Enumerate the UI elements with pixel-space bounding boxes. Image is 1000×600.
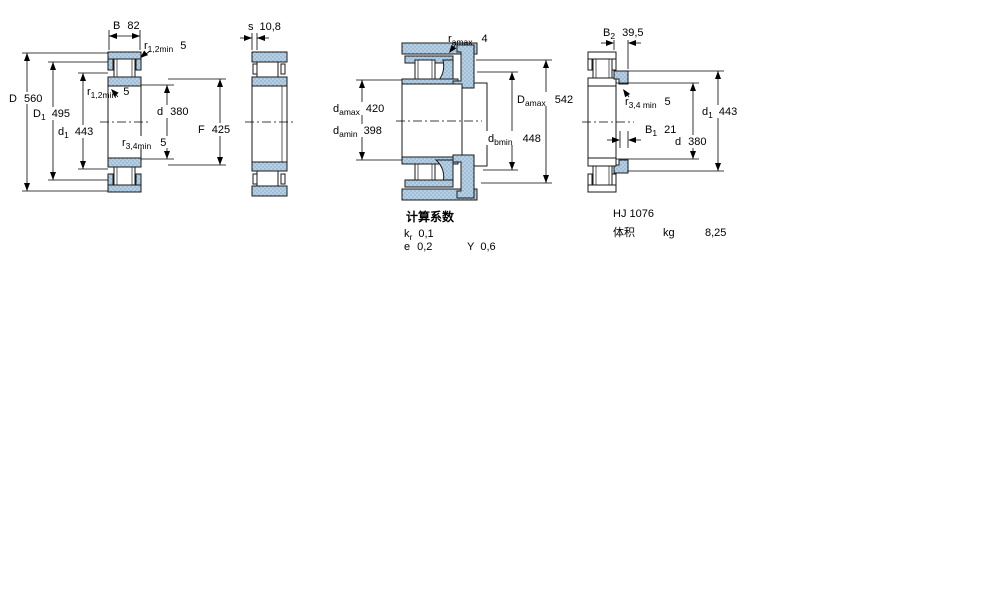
outer-ring-bottom — [588, 185, 616, 192]
outer-ring-flange — [108, 59, 113, 70]
angle-ring-info-block: HJ 1076 体积 kg 8,25 — [613, 208, 726, 239]
angle-ring-designation: HJ 1076 — [613, 208, 654, 220]
arrowhead — [359, 80, 365, 88]
arrowhead — [217, 157, 223, 165]
inner-ring-top — [108, 77, 141, 86]
outer-ring-flange — [612, 59, 616, 70]
side-section-view: s10,8 — [240, 21, 294, 196]
arrowhead — [690, 83, 696, 91]
inner-ring-bottom — [252, 162, 287, 171]
outer-ring-top — [252, 52, 287, 62]
angle-ring-view-body — [582, 52, 634, 192]
outer-ring-bottom — [405, 180, 453, 187]
dim-F: F425 — [168, 79, 230, 165]
dim-s: s10,8 — [240, 21, 281, 50]
dim-label-F: F425 — [198, 124, 230, 136]
arrowhead — [628, 40, 636, 46]
dim-D1: D1495 — [31, 62, 108, 180]
dim-da: damax420 damin398 — [331, 80, 402, 160]
dim-r34: r3,4min5 — [120, 136, 176, 151]
mounting-view: ramax4 damax420 damin398 dbmin448 — [331, 33, 584, 200]
dim-r12-top: r1,2min5 — [138, 40, 186, 60]
outer-ring-bottom — [108, 185, 141, 192]
dim-d1-ring: d1443 — [628, 71, 745, 171]
cage-side — [281, 64, 285, 74]
arrowhead — [24, 183, 30, 191]
arrowhead — [80, 73, 86, 81]
angle-ring-view: B239,5 r3,4 min5 B121 d380 — [582, 27, 745, 192]
calculation-factors-block: 计算系数 kr0,1 e0,2 Y0,6 — [404, 209, 496, 253]
arrowhead — [24, 53, 30, 61]
dim-label-s: s10,8 — [248, 21, 281, 33]
outer-ring-bottom — [252, 186, 287, 196]
dim-label-D1: D1495 — [33, 108, 70, 122]
dim-label-d-ring: d380 — [675, 136, 706, 148]
arrowhead — [359, 152, 365, 160]
dim-label-B1: B121 — [645, 124, 676, 138]
dim-Da: Damax542 — [476, 60, 584, 183]
arrowhead — [80, 161, 86, 169]
dim-label-d1: d1443 — [58, 126, 93, 140]
dim-d-ring: d380 — [616, 83, 712, 159]
arrowhead — [109, 33, 117, 39]
arrowhead — [50, 172, 56, 180]
dim-B1: B121 — [607, 124, 676, 148]
arrowhead — [628, 137, 636, 143]
dim-label-d1-ring: d1443 — [702, 106, 737, 120]
dim-label-B: B82 — [113, 20, 140, 32]
arrowhead — [509, 162, 515, 170]
mass-value: 8,25 — [705, 227, 726, 239]
dim-label-ra: ramax4 — [448, 33, 488, 47]
arrowhead — [509, 72, 515, 80]
dim-r34-ring: r3,4 min5 — [621, 87, 671, 110]
mass-label: 体积 — [613, 225, 635, 239]
roller — [257, 62, 278, 77]
factor-kr: kr0,1 — [404, 228, 434, 242]
outer-ring-top — [108, 52, 141, 59]
outer-ring-top — [588, 52, 616, 59]
shaft-shoulder — [462, 83, 487, 166]
outer-ring-flange — [612, 174, 616, 185]
mass-unit: kg — [663, 227, 675, 239]
outer-ring-flange — [588, 174, 592, 185]
arrowhead — [164, 151, 170, 159]
inner-ring-bottom — [588, 158, 616, 166]
arrowhead — [715, 163, 721, 171]
arrowhead — [132, 33, 140, 39]
dim-label-d: d380 — [157, 106, 188, 118]
arrowhead — [164, 85, 170, 93]
factor-Y: Y0,6 — [467, 241, 496, 253]
mounting-view-body — [396, 43, 487, 200]
arrowhead — [50, 62, 56, 70]
outer-ring-flange — [136, 59, 141, 70]
outer-ring-flange — [588, 59, 592, 70]
arrowhead — [257, 35, 265, 41]
arrowhead — [543, 175, 549, 183]
inner-ring-top — [588, 78, 616, 86]
side-view-body — [245, 52, 294, 196]
dim-D: D560 — [7, 53, 108, 191]
bearing-technical-drawing: B82 r1,2min5 D560 D1495 — [0, 0, 1000, 600]
arrowhead — [690, 151, 696, 159]
roller — [257, 171, 278, 186]
shaft-section — [402, 84, 462, 159]
dim-label-r34-ring: r3,4 min5 — [625, 96, 671, 110]
outer-ring-flange — [108, 174, 113, 185]
outer-ring-flange — [136, 174, 141, 185]
factor-e: e0,2 — [404, 241, 432, 253]
calculation-factors-title: 计算系数 — [406, 209, 455, 224]
main-cross-section-view: B82 r1,2min5 D560 D1495 — [7, 20, 230, 192]
inner-ring-top — [252, 77, 287, 86]
arrowhead — [217, 79, 223, 87]
cage-side — [281, 174, 285, 184]
arrowhead — [244, 35, 252, 41]
dim-label-r12-top: r1,2min5 — [144, 40, 186, 54]
cage-side — [253, 64, 257, 74]
arrowhead — [715, 71, 721, 79]
dim-d1: d1443 — [56, 73, 108, 169]
dim-B: B82 — [109, 20, 140, 50]
dim-label-B2: B239,5 — [603, 27, 644, 41]
inner-ring-bottom — [108, 158, 141, 167]
cage-side — [253, 174, 257, 184]
arrowhead — [543, 60, 549, 68]
dim-label-D: D560 — [9, 93, 42, 105]
